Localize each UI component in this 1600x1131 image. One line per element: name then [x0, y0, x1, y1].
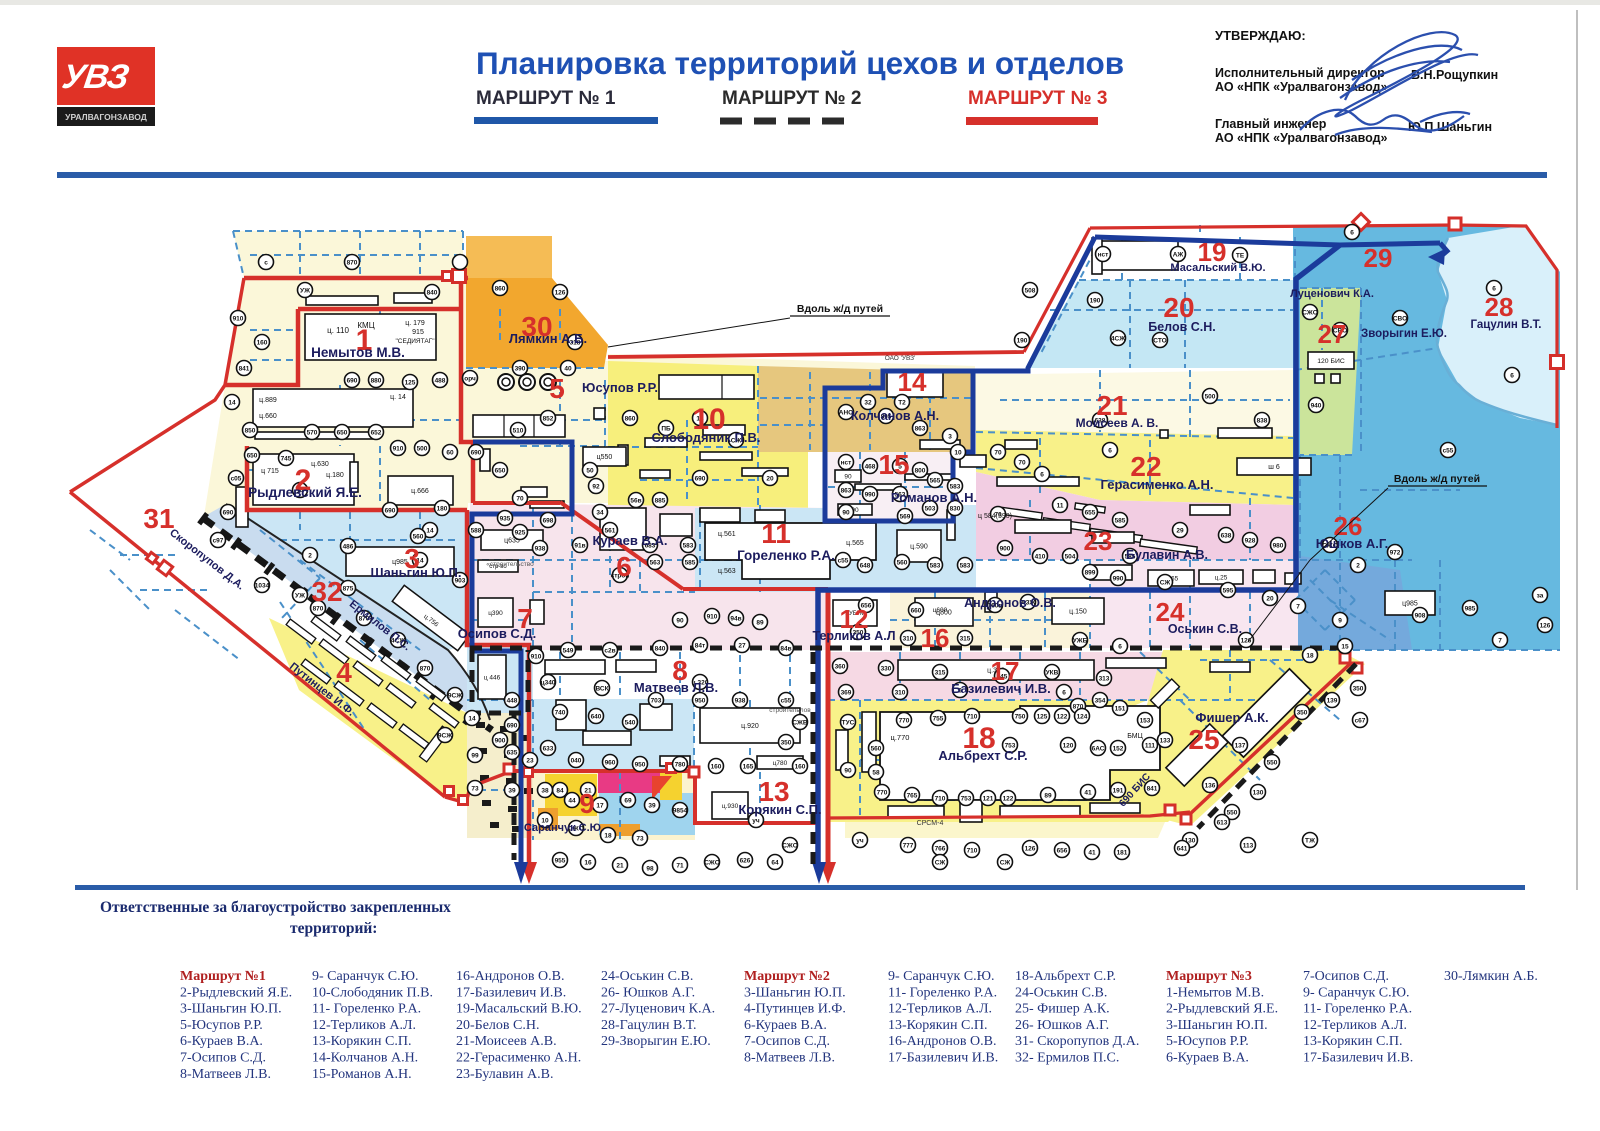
- svg-text:СРСМ-4: СРСМ-4: [917, 820, 944, 827]
- svg-text:территорий:: территорий:: [290, 920, 377, 937]
- svg-text:ТЖ: ТЖ: [1305, 837, 1315, 844]
- svg-text:910: 910: [531, 653, 542, 660]
- svg-text:25- Фишер А.К.: 25- Фишер А.К.: [1015, 1002, 1110, 1017]
- svg-text:040: 040: [571, 757, 582, 764]
- svg-text:840: 840: [655, 645, 666, 652]
- svg-text:410: 410: [1035, 553, 1046, 560]
- svg-text:орч: орч: [464, 375, 476, 382]
- svg-text:90: 90: [676, 617, 684, 624]
- svg-text:Базилевич И.В.: Базилевич И.В.: [951, 681, 1051, 696]
- svg-text:899: 899: [1085, 569, 1096, 576]
- svg-text:160: 160: [795, 763, 806, 770]
- svg-text:130: 130: [1253, 789, 1264, 796]
- svg-text:Оськин С.В.: Оськин С.В.: [1168, 622, 1242, 636]
- svg-text:585: 585: [1115, 517, 1126, 524]
- svg-text:Юсупов Р.Р.: Юсупов Р.Р.: [582, 380, 658, 395]
- svg-text:94в: 94в: [730, 615, 741, 622]
- svg-text:7-Осипов С.Д.: 7-Осипов С.Д.: [744, 1034, 830, 1049]
- svg-text:698: 698: [543, 517, 554, 524]
- svg-text:АЖ: АЖ: [1173, 251, 1184, 258]
- svg-text:910: 910: [707, 613, 718, 620]
- svg-text:Андронов О.В.: Андронов О.В.: [964, 596, 1056, 610]
- svg-text:2: 2: [308, 552, 312, 559]
- svg-text:ц.25: ц.25: [1215, 574, 1228, 581]
- svg-text:8-Матвеев Л.В.: 8-Матвеев Л.В.: [180, 1067, 271, 1082]
- svg-text:985: 985: [1465, 605, 1476, 612]
- svg-text:330: 330: [881, 665, 892, 672]
- svg-text:СЖ: СЖ: [1000, 859, 1011, 866]
- svg-text:УТВЕРЖДАЮ:: УТВЕРЖДАЮ:: [1215, 28, 1306, 43]
- svg-text:ц.590: ц.590: [910, 543, 928, 550]
- svg-text:583: 583: [960, 562, 971, 569]
- svg-text:90: 90: [844, 473, 852, 480]
- svg-text:583: 583: [683, 542, 694, 549]
- svg-text:17-Базилевич И.В.: 17-Базилевич И.В.: [1303, 1051, 1413, 1066]
- svg-text:70: 70: [1018, 459, 1026, 466]
- svg-text:44: 44: [568, 797, 576, 804]
- svg-text:6: 6: [1118, 643, 1122, 650]
- svg-text:10-Слободяник П.В.: 10-Слободяник П.В.: [312, 985, 433, 1000]
- svg-text:29: 29: [1176, 527, 1184, 534]
- svg-text:ц 715: ц 715: [261, 468, 279, 475]
- svg-text:СТО: СТО: [1153, 337, 1166, 344]
- svg-text:2-Рыдлевский Я.Е.: 2-Рыдлевский Я.Е.: [1166, 1002, 1278, 1017]
- svg-text:ц. 179: ц. 179: [405, 320, 425, 327]
- svg-text:с67: с67: [1355, 717, 1366, 724]
- svg-text:560: 560: [413, 533, 424, 540]
- svg-text:Белов С.Н.: Белов С.Н.: [1148, 320, 1216, 334]
- svg-text:950: 950: [635, 761, 646, 768]
- svg-text:955: 955: [555, 857, 566, 864]
- svg-text:АО «НПК «Уралвагонзавод»: АО «НПК «Уралвагонзавод»: [1215, 131, 1388, 145]
- svg-text:310: 310: [895, 689, 906, 696]
- svg-text:уч: уч: [856, 837, 864, 844]
- svg-text:560: 560: [871, 745, 882, 752]
- svg-text:710: 710: [967, 713, 978, 720]
- svg-text:73: 73: [471, 785, 479, 792]
- svg-text:181: 181: [1117, 849, 1128, 856]
- svg-text:Гореленко Р.А.: Гореленко Р.А.: [737, 548, 835, 563]
- svg-text:ТЕ: ТЕ: [1236, 252, 1245, 259]
- svg-text:50: 50: [586, 467, 594, 474]
- svg-text:Зворыгин Е.Ю.: Зворыгин Е.Ю.: [1361, 328, 1447, 340]
- svg-text:940: 940: [1311, 402, 1322, 409]
- svg-text:СЖО: СЖО: [782, 842, 798, 849]
- svg-text:9: 9: [1338, 617, 1342, 624]
- svg-text:6АС: 6АС: [1092, 745, 1105, 752]
- svg-text:660: 660: [911, 607, 922, 614]
- svg-text:с55: с55: [838, 557, 849, 564]
- svg-text:84в: 84в: [780, 645, 791, 652]
- svg-text:852: 852: [543, 415, 554, 422]
- svg-text:СЖО: СЖО: [1302, 309, 1318, 316]
- svg-text:3: 3: [948, 433, 952, 440]
- svg-text:21: 21: [616, 862, 624, 869]
- svg-text:6-Кураев В.А.: 6-Кураев В.А.: [1166, 1051, 1249, 1066]
- svg-text:7-Осипов С.Д.: 7-Осипов С.Д.: [180, 1051, 266, 1066]
- svg-text:652: 652: [371, 429, 382, 436]
- svg-text:11- Гореленко Р.А.: 11- Гореленко Р.А.: [1303, 1002, 1412, 1017]
- svg-text:11- Гореленко Р.А.: 11- Гореленко Р.А.: [888, 985, 997, 1000]
- svg-text:613: 613: [1217, 819, 1228, 826]
- svg-text:938: 938: [535, 545, 546, 552]
- svg-text:565: 565: [930, 477, 941, 484]
- svg-text:31- Скоропупов Д.А.: 31- Скоропупов Д.А.: [1015, 1034, 1139, 1049]
- svg-text:73: 73: [636, 835, 644, 842]
- svg-text:Вдоль ж/д путей: Вдоль ж/д путей: [797, 303, 883, 315]
- svg-text:354: 354: [1095, 697, 1106, 704]
- svg-text:ц.565: ц.565: [846, 540, 864, 547]
- svg-text:24-Оськин С.В.: 24-Оськин С.В.: [1015, 985, 1107, 1000]
- svg-text:885: 885: [655, 497, 666, 504]
- svg-text:151: 151: [1115, 705, 1126, 712]
- svg-text:Маршрут №1: Маршрут №1: [180, 969, 266, 984]
- svg-text:595: 595: [1223, 587, 1234, 594]
- svg-text:122: 122: [1057, 713, 1068, 720]
- svg-text:70: 70: [516, 495, 524, 502]
- svg-text:133: 133: [1160, 737, 1171, 744]
- svg-text:9854: 9854: [673, 807, 688, 814]
- svg-text:360: 360: [835, 663, 846, 670]
- svg-text:СЖ: СЖ: [935, 859, 946, 866]
- svg-text:6: 6: [1062, 689, 1066, 696]
- svg-text:8-Матвеев Л.В.: 8-Матвеев Л.В.: [744, 1051, 835, 1066]
- svg-text:908: 908: [1415, 612, 1426, 619]
- svg-text:690: 690: [471, 449, 482, 456]
- svg-text:ц.561: ц.561: [718, 531, 736, 538]
- svg-text:58: 58: [872, 769, 880, 776]
- svg-text:585: 585: [685, 559, 696, 566]
- svg-text:Маршрут №3: Маршрут №3: [1166, 969, 1252, 984]
- svg-text:9- Саранчук С.Ю.: 9- Саранчук С.Ю.: [1303, 985, 1410, 1000]
- svg-text:ц 584(590): ц 584(590): [978, 513, 1012, 520]
- svg-text:Романов А.Н.: Романов А.Н.: [891, 490, 977, 505]
- svg-text:6-Кураев В.А.: 6-Кураев В.А.: [744, 1018, 827, 1033]
- svg-text:26- Юшков А.Г.: 26- Юшков А.Г.: [601, 985, 695, 1000]
- svg-text:40: 40: [564, 365, 572, 372]
- svg-text:137: 137: [1235, 742, 1246, 749]
- svg-text:17: 17: [596, 802, 604, 809]
- svg-text:655: 655: [1085, 509, 1096, 516]
- svg-text:980: 980: [1273, 542, 1284, 549]
- svg-text:10: 10: [954, 449, 962, 456]
- svg-text:765: 765: [907, 792, 918, 799]
- svg-text:770: 770: [899, 717, 910, 724]
- svg-text:39: 39: [508, 787, 516, 794]
- svg-text:АО «НПК «Уралвагонзавод»: АО «НПК «Уралвагонзавод»: [1215, 80, 1388, 94]
- svg-text:23: 23: [526, 757, 534, 764]
- svg-text:МАРШРУТ № 3: МАРШРУТ № 3: [968, 88, 1107, 109]
- svg-text:124: 124: [1077, 713, 1088, 720]
- svg-text:17-Базилевич И.В.: 17-Базилевич И.В.: [456, 985, 566, 1000]
- svg-text:125: 125: [1037, 713, 1048, 720]
- svg-text:504: 504: [1065, 553, 1076, 560]
- svg-text:Фишер А.К.: Фишер А.К.: [1195, 710, 1268, 725]
- svg-text:950: 950: [695, 697, 706, 704]
- svg-text:ц.666: ц.666: [411, 488, 429, 495]
- svg-text:840: 840: [427, 289, 438, 296]
- svg-text:38: 38: [541, 787, 549, 794]
- svg-text:125: 125: [405, 379, 416, 386]
- svg-text:2: 2: [1356, 562, 1360, 569]
- svg-text:УРАЛВАГОНЗАВОД: УРАЛВАГОНЗАВОД: [65, 112, 147, 122]
- svg-text:69: 69: [624, 797, 632, 804]
- svg-text:«строительство: «строительство: [486, 561, 534, 568]
- svg-text:838: 838: [1257, 417, 1268, 424]
- svg-text:ц.920: ц.920: [741, 723, 759, 730]
- svg-text:111: 111: [1145, 742, 1156, 749]
- svg-text:ВСК: ВСК: [595, 685, 608, 692]
- svg-text:за: за: [1537, 592, 1544, 599]
- svg-text:14-Колчанов А.Н.: 14-Колчанов А.Н.: [312, 1051, 418, 1066]
- svg-text:ц. 14: ц. 14: [390, 394, 406, 401]
- svg-text:972: 972: [1390, 549, 1401, 556]
- svg-text:с: с: [264, 259, 268, 266]
- svg-text:935: 935: [500, 515, 511, 522]
- svg-text:863: 863: [915, 425, 926, 432]
- svg-text:14: 14: [426, 527, 434, 534]
- svg-text:500: 500: [417, 445, 428, 452]
- svg-text:850: 850: [245, 427, 256, 434]
- svg-text:98: 98: [646, 865, 654, 872]
- svg-text:703: 703: [651, 697, 662, 704]
- svg-text:28-Гацулин В.Т.: 28-Гацулин В.Т.: [601, 1018, 696, 1033]
- svg-text:800: 800: [915, 467, 926, 474]
- svg-text:500: 500: [1205, 393, 1216, 400]
- svg-text:ц 446: ц 446: [484, 674, 501, 681]
- svg-text:6: 6: [616, 551, 632, 582]
- svg-text:14: 14: [228, 399, 236, 406]
- svg-text:508: 508: [1025, 287, 1036, 294]
- svg-text:910: 910: [233, 315, 244, 322]
- svg-text:ц.889: ц.889: [259, 397, 277, 404]
- svg-text:17-Базилевич И.В.: 17-Базилевич И.В.: [888, 1051, 998, 1066]
- svg-text:89: 89: [756, 619, 764, 626]
- svg-text:626: 626: [740, 857, 751, 864]
- svg-text:27: 27: [738, 642, 746, 649]
- svg-text:863: 863: [841, 487, 852, 494]
- svg-text:12-Терликов А.Л.: 12-Терликов А.Л.: [312, 1018, 416, 1033]
- svg-text:14: 14: [898, 367, 927, 397]
- svg-text:СЖО: СЖО: [704, 859, 720, 866]
- svg-text:9: 9: [579, 788, 595, 819]
- svg-text:Слободяник П.В.: Слободяник П.В.: [652, 430, 761, 445]
- svg-text:6: 6: [1040, 471, 1044, 478]
- svg-text:160: 160: [257, 339, 268, 346]
- svg-text:313: 313: [1099, 675, 1110, 682]
- svg-text:120: 120: [1063, 742, 1074, 749]
- svg-text:488: 488: [435, 377, 446, 384]
- svg-text:Колчанов А.Н.: Колчанов А.Н.: [851, 409, 939, 423]
- svg-text:16-Андронов О.В.: 16-Андронов О.В.: [888, 1034, 996, 1049]
- svg-text:650: 650: [495, 467, 506, 474]
- svg-text:18: 18: [1306, 652, 1314, 659]
- svg-text:120 БИС: 120 БИС: [1317, 358, 1345, 365]
- svg-text:ц.150: ц.150: [1069, 608, 1087, 615]
- svg-text:ш 6: ш 6: [1268, 464, 1280, 471]
- svg-text:МАРШРУТ № 2: МАРШРУТ № 2: [722, 88, 861, 109]
- svg-text:6: 6: [1350, 229, 1354, 236]
- svg-text:32: 32: [311, 576, 342, 607]
- svg-text:СЖВ: СЖВ: [792, 719, 808, 726]
- svg-text:14: 14: [468, 715, 476, 722]
- svg-text:16: 16: [921, 623, 950, 653]
- svg-text:1-Немытов М.В.: 1-Немытов М.В.: [1166, 985, 1264, 1000]
- svg-text:ц.930: ц.930: [722, 803, 739, 810]
- svg-text:640: 640: [591, 713, 602, 720]
- svg-text:Кураев В.А.: Кураев В.А.: [593, 533, 668, 548]
- svg-text:860: 860: [495, 285, 506, 292]
- svg-text:ц. 110: ц. 110: [327, 326, 349, 335]
- svg-text:641: 641: [1177, 845, 1188, 852]
- svg-text:28: 28: [1485, 292, 1514, 322]
- svg-text:нст: нст: [1098, 251, 1109, 258]
- svg-text:136: 136: [1205, 782, 1216, 789]
- svg-text:91в: 91в: [574, 542, 585, 549]
- svg-text:191: 191: [1113, 787, 1124, 794]
- svg-text:139: 139: [1327, 697, 1338, 704]
- svg-text:Планировка территорий цехов и: Планировка территорий цехов и отделов: [476, 45, 1124, 81]
- svg-text:Шаньгин Ю.П.: Шаньгин Ю.П.: [371, 565, 462, 580]
- svg-text:89: 89: [1044, 792, 1052, 799]
- svg-text:540: 540: [625, 719, 636, 726]
- svg-text:6-Кураев В.А.: 6-Кураев В.А.: [180, 1034, 263, 1049]
- svg-text:24-Оськин С.В.: 24-Оськин С.В.: [601, 969, 693, 984]
- svg-text:7: 7: [1498, 637, 1502, 644]
- svg-text:Т2: Т2: [898, 399, 906, 406]
- svg-text:ц.660: ц.660: [259, 413, 277, 420]
- svg-text:с55: с55: [781, 697, 792, 704]
- svg-text:448: 448: [507, 697, 518, 704]
- svg-text:15: 15: [878, 449, 909, 480]
- svg-text:113: 113: [1243, 842, 1254, 849]
- svg-text:486: 486: [343, 543, 354, 550]
- svg-text:70: 70: [994, 449, 1002, 456]
- svg-text:4-Путинцев И.Ф.: 4-Путинцев И.Ф.: [744, 1002, 846, 1017]
- svg-text:126: 126: [1540, 622, 1551, 629]
- svg-text:21-Моисеев А.В.: 21-Моисеев А.В.: [456, 1034, 557, 1049]
- svg-text:Луценович К.А.: Луценович К.А.: [1290, 288, 1374, 300]
- svg-text:уч: уч: [752, 817, 760, 824]
- svg-text:41: 41: [1084, 789, 1092, 796]
- svg-text:990: 990: [1113, 575, 1124, 582]
- svg-text:"СЕДИЯТАГ": "СЕДИЯТАГ": [395, 338, 435, 345]
- svg-text:841: 841: [1147, 785, 1158, 792]
- svg-text:5-Юсупов Р.Р.: 5-Юсупов Р.Р.: [180, 1018, 263, 1033]
- svg-text:строительлов: строительлов: [769, 707, 811, 714]
- svg-text:1034: 1034: [255, 582, 270, 589]
- svg-text:32: 32: [864, 399, 872, 406]
- svg-text:870: 870: [420, 665, 431, 672]
- svg-text:690: 690: [507, 722, 518, 729]
- svg-text:Моисеев А. В.: Моисеев А. В.: [1076, 416, 1159, 430]
- svg-text:830: 830: [950, 505, 961, 512]
- svg-text:ц.630: ц.630: [311, 461, 329, 468]
- svg-text:с97: с97: [213, 537, 224, 544]
- svg-text:СВО: СВО: [1393, 315, 1407, 322]
- svg-text:190: 190: [1017, 337, 1028, 344]
- svg-text:56в: 56в: [630, 497, 641, 504]
- svg-text:560: 560: [897, 559, 908, 566]
- svg-text:350: 350: [781, 739, 792, 746]
- svg-text:315: 315: [935, 669, 946, 676]
- svg-text:190: 190: [1090, 297, 1101, 304]
- svg-text:310: 310: [903, 635, 914, 642]
- svg-text:ц550: ц550: [597, 454, 613, 461]
- svg-text:27-Луценович К.А.: 27-Луценович К.А.: [601, 1002, 715, 1017]
- svg-text:84: 84: [556, 787, 564, 794]
- svg-text:УЖБ: УЖБ: [1073, 637, 1088, 644]
- svg-text:710: 710: [967, 847, 978, 854]
- svg-text:633: 633: [543, 745, 554, 752]
- svg-text:29-Зворыгин Е.Ю.: 29-Зворыгин Е.Ю.: [601, 1034, 711, 1049]
- svg-text:750: 750: [1015, 713, 1026, 720]
- svg-text:900: 900: [495, 737, 506, 744]
- svg-text:910: 910: [393, 445, 404, 452]
- svg-text:19-Масальский В.Ю.: 19-Масальский В.Ю.: [456, 1002, 582, 1017]
- svg-text:880: 880: [371, 377, 382, 384]
- svg-text:635: 635: [507, 749, 518, 756]
- svg-text:15: 15: [1341, 643, 1349, 650]
- svg-text:638: 638: [1221, 532, 1232, 539]
- svg-text:503: 503: [925, 505, 936, 512]
- svg-text:ц390: ц390: [488, 610, 503, 617]
- svg-text:588: 588: [471, 527, 482, 534]
- svg-text:13-Корякин С.П.: 13-Корякин С.П.: [1303, 1034, 1402, 1049]
- svg-text:ОАО 'УВЗ': ОАО 'УВЗ': [885, 355, 916, 362]
- svg-text:Юшков А.Г.: Юшков А.Г.: [1316, 536, 1388, 551]
- svg-text:УКВ: УКВ: [1046, 669, 1059, 676]
- svg-text:650: 650: [247, 452, 258, 459]
- svg-text:550: 550: [1227, 809, 1238, 816]
- svg-text:841: 841: [239, 365, 250, 372]
- svg-text:26- Юшков А.Г.: 26- Юшков А.Г.: [1015, 1018, 1109, 1033]
- svg-text:23-Булавин А.В.: 23-Булавин А.В.: [456, 1067, 553, 1082]
- svg-text:153: 153: [1140, 717, 1151, 724]
- svg-text:563: 563: [650, 559, 661, 566]
- svg-text:122: 122: [1003, 795, 1014, 802]
- svg-text:690: 690: [695, 475, 706, 482]
- svg-text:745: 745: [281, 455, 292, 462]
- svg-text:780: 780: [675, 761, 686, 768]
- svg-text:870: 870: [347, 259, 358, 266]
- svg-text:30-Лямкин А.Б.: 30-Лямкин А.Б.: [1444, 969, 1538, 984]
- svg-text:549: 549: [563, 647, 574, 654]
- svg-text:41: 41: [1088, 849, 1096, 856]
- svg-text:32- Ермилов П.С.: 32- Ермилов П.С.: [1015, 1051, 1119, 1066]
- svg-text:13-Корякин С.П.: 13-Корякин С.П.: [312, 1034, 411, 1049]
- svg-text:34: 34: [596, 509, 604, 516]
- svg-text:860: 860: [625, 415, 636, 422]
- svg-text:84т: 84т: [695, 642, 705, 649]
- svg-text:Ответственные за благоустройст: Ответственные за благоустройство закрепл…: [100, 899, 451, 916]
- svg-text:900: 900: [1000, 545, 1011, 552]
- svg-text:925: 925: [515, 529, 526, 536]
- svg-text:МАРШРУТ № 1: МАРШРУТ № 1: [476, 88, 616, 109]
- svg-text:13-Корякин С.П.: 13-Корякин С.П.: [888, 1018, 987, 1033]
- svg-text:350: 350: [1353, 685, 1364, 692]
- svg-text:Гацулин В.Т.: Гацулин В.Т.: [1470, 319, 1541, 331]
- svg-text:нст: нст: [841, 459, 852, 466]
- svg-text:Маршрут №2: Маршрут №2: [744, 969, 830, 984]
- svg-text:3-Шаньгин Ю.П.: 3-Шаньгин Ю.П.: [1166, 1018, 1268, 1033]
- svg-text:180: 180: [437, 505, 448, 512]
- svg-text:Булавин А.В.: Булавин А.В.: [1126, 548, 1208, 562]
- svg-text:ц600: ц600: [933, 607, 948, 614]
- svg-text:УЖ: УЖ: [295, 592, 305, 599]
- svg-text:938: 938: [735, 697, 746, 704]
- svg-text:90: 90: [842, 509, 850, 516]
